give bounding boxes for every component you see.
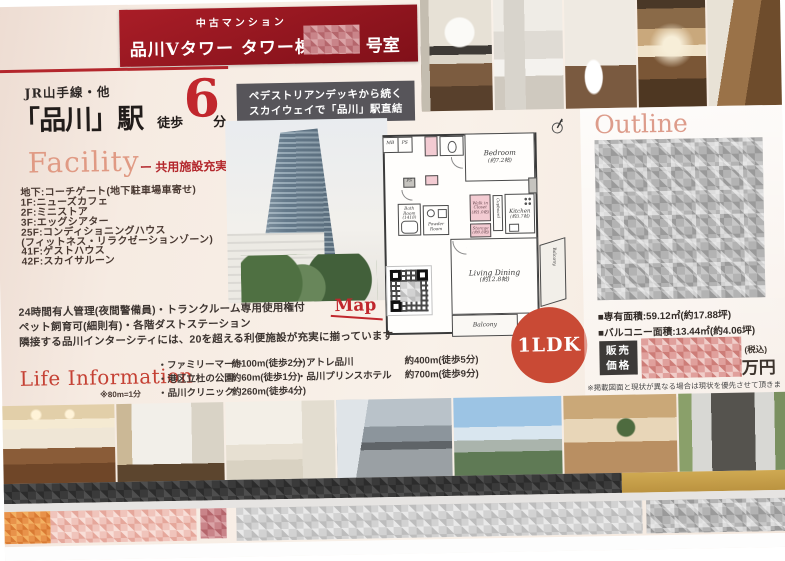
qr-center-redacted <box>400 281 420 301</box>
outline-panel: Outline ■専有面積:59.12㎡(約17.88坪) ■バルコニー面積:1… <box>580 105 785 399</box>
plan-bathroom: Bath Room (1418) <box>398 203 422 235</box>
photo-kitchen <box>420 0 493 111</box>
sink-icon <box>427 209 435 217</box>
plan-balcony-label: Balcony <box>473 322 497 329</box>
washer-icon <box>438 209 447 218</box>
deck-note-line2: スカイウェイで「品川」駅直結 <box>249 101 403 119</box>
footer-logo-redacted <box>4 511 51 544</box>
kitchen-sink-icon <box>509 224 519 232</box>
compass-icon <box>548 117 566 135</box>
poi-name: ・アトレ品川 <box>296 354 353 369</box>
plan-side-balcony-label: Balcony <box>550 247 555 267</box>
qr-finder <box>390 270 401 281</box>
photo-corridor <box>637 0 707 107</box>
photo-lobby <box>563 394 677 474</box>
photo-toilet <box>564 0 637 109</box>
price-label-line1: 販売 <box>606 343 631 358</box>
qr-code <box>386 265 433 316</box>
plan-powder-label2: Room <box>424 227 448 232</box>
outline-title: Outline <box>594 109 688 140</box>
plan-walkin-closet: Walk in Closet (約1.0帖) <box>470 194 491 221</box>
plan-wc <box>439 136 463 156</box>
plan-living-size: (約12.8帖) <box>452 276 537 284</box>
plan-mbps: MB PS <box>382 137 412 154</box>
poi-distance: 約60m(徒歩1分) <box>232 369 301 384</box>
facility-list: 地下:コーチゲート(地下駐車場車寄せ) 1F:ニューズカフェ 2F:ミニストア … <box>20 185 236 268</box>
bathtub-icon <box>401 221 418 234</box>
footer-contact-redacted <box>236 500 643 540</box>
poi-distance: 約400m(徒歩5分) <box>404 351 478 366</box>
property-title: 品川Ⅴタワー タワー棟 <box>130 32 314 60</box>
plan-mb-label: MB <box>383 138 398 152</box>
header-banner: 中古マンション 品川Ⅴタワー タワー棟 号室 <box>119 5 418 67</box>
photo-bathroom <box>225 400 335 480</box>
plan-ps-small: PS <box>403 178 415 188</box>
price-label-box: 販売 価格 <box>599 341 638 376</box>
photo-living-room <box>2 404 115 484</box>
footer-name-redacted <box>50 509 197 544</box>
qr-finder <box>417 269 428 280</box>
facility-title: Facility <box>28 145 140 180</box>
photo-entrance <box>678 392 785 472</box>
plan-kitchen-size: (約3.7帖) <box>506 215 534 220</box>
plan-kitchen: Kitchen (約3.7帖) <box>504 193 535 234</box>
poi-distance: 約700m(徒歩9分) <box>405 365 479 380</box>
price-redacted <box>641 337 742 379</box>
plan-storage: Storage (約0.8帖) <box>470 223 491 237</box>
price-unit: 万円 <box>741 353 775 379</box>
poi-name: ・ファミリーマート <box>157 356 243 372</box>
plan-balcony: Balcony <box>452 314 518 337</box>
plan-duct-right <box>528 177 537 193</box>
layout-badge: 1LDK <box>511 306 588 383</box>
exclusive-area: ■専有面積:59.12㎡(約17.88坪) <box>598 307 732 323</box>
poi-name: ・品川クリニック <box>158 384 234 399</box>
plan-storage-top <box>424 136 437 156</box>
layout-badge-label: 1LDK <box>517 334 581 357</box>
poi-name: ・港区立杜の公園 <box>158 370 234 385</box>
station-name: 「品川」駅 <box>13 97 144 138</box>
plan-storage-size: (約0.8帖) <box>471 230 490 235</box>
room-suffix: 号室 <box>365 31 399 57</box>
poi-distance: 約100m(徒歩2分) <box>231 355 305 370</box>
room-number-redacted <box>303 25 360 55</box>
map-label: Map <box>334 295 376 316</box>
plan-ps-label: PS <box>398 138 412 152</box>
poi-name: ・品川プリンスホテル <box>297 367 392 383</box>
photo-vanity <box>493 0 564 110</box>
plan-wic-size: (約1.0帖) <box>471 210 490 215</box>
plan-shoes-box <box>425 175 438 185</box>
poi-distance: 約260m(徒歩4分) <box>232 383 306 398</box>
life-info-note: ※80m=1分 <box>100 389 141 401</box>
plan-ps2-label: PS <box>404 179 414 184</box>
photo-city-view <box>453 396 562 476</box>
property-category: 中古マンション <box>161 12 321 30</box>
walk-label: 徒歩 <box>157 112 183 131</box>
photo-balcony <box>336 398 452 478</box>
photo-hallway <box>707 0 782 106</box>
plan-bedroom-size: (約7.2帖) <box>466 157 534 164</box>
plan-cupboard-label: Cupboard <box>495 198 500 218</box>
flyer-page: 中古マンション 品川Ⅴタワー タワー棟 号室 JR山手線・他 「品川」駅 徒歩 … <box>0 0 785 561</box>
footer-mark-redacted <box>200 508 227 538</box>
footer-license-redacted <box>646 498 785 534</box>
qr-finder <box>390 301 401 312</box>
photo-bedroom-interior <box>116 402 224 482</box>
price-label-line2: 価格 <box>606 358 631 373</box>
photo-building-exterior <box>225 118 390 303</box>
plan-side-balcony: Balcony <box>539 237 566 307</box>
toilet-icon <box>448 141 457 153</box>
plan-cupboard: Cupboard <box>493 195 504 231</box>
plan-bedroom: Bedroom (約7.2帖) <box>464 132 535 181</box>
outline-details-redacted <box>595 137 766 300</box>
plan-powder-room: Powder Room <box>423 205 450 235</box>
facility-item: 42F:スカイサルーン <box>22 254 237 268</box>
